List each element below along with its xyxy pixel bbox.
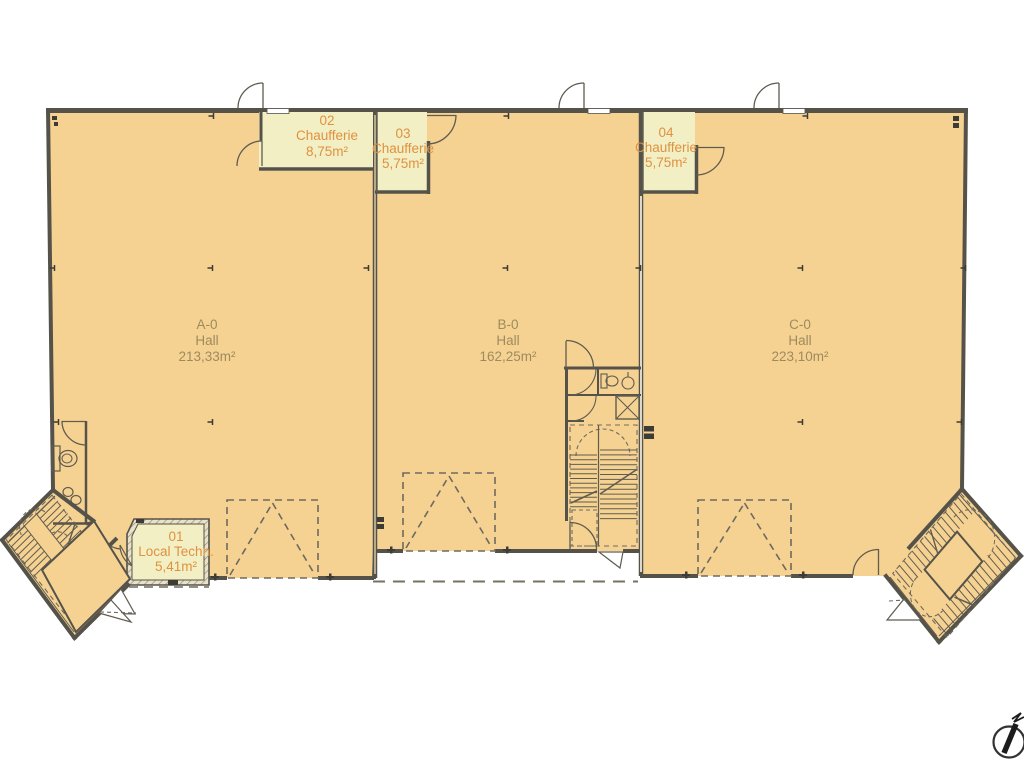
svg-text:Hall: Hall xyxy=(195,333,218,348)
svg-text:Chaufferie: Chaufferie xyxy=(296,128,358,143)
svg-text:8,75m²: 8,75m² xyxy=(306,144,349,159)
svg-text:04: 04 xyxy=(658,125,674,140)
svg-text:B-0: B-0 xyxy=(497,317,518,332)
svg-text:02: 02 xyxy=(319,113,334,128)
svg-text:5,75m²: 5,75m² xyxy=(382,156,425,171)
svg-text:Chaufferie: Chaufferie xyxy=(635,140,697,155)
svg-text:Hall: Hall xyxy=(496,333,519,348)
svg-text:162,25m²: 162,25m² xyxy=(479,349,537,364)
svg-text:03: 03 xyxy=(395,126,410,141)
svg-text:5,41m²: 5,41m² xyxy=(155,559,198,574)
svg-text:213,33m²: 213,33m² xyxy=(178,349,236,364)
svg-text:223,10m²: 223,10m² xyxy=(771,349,829,364)
svg-text:A-0: A-0 xyxy=(196,317,217,332)
svg-text:Local Techn.: Local Techn. xyxy=(138,544,214,559)
svg-text:Chaufferie: Chaufferie xyxy=(372,141,434,156)
svg-text:C-0: C-0 xyxy=(789,317,811,332)
svg-text:01: 01 xyxy=(168,529,183,544)
svg-text:Hall: Hall xyxy=(788,333,811,348)
svg-text:5,75m²: 5,75m² xyxy=(645,155,688,170)
